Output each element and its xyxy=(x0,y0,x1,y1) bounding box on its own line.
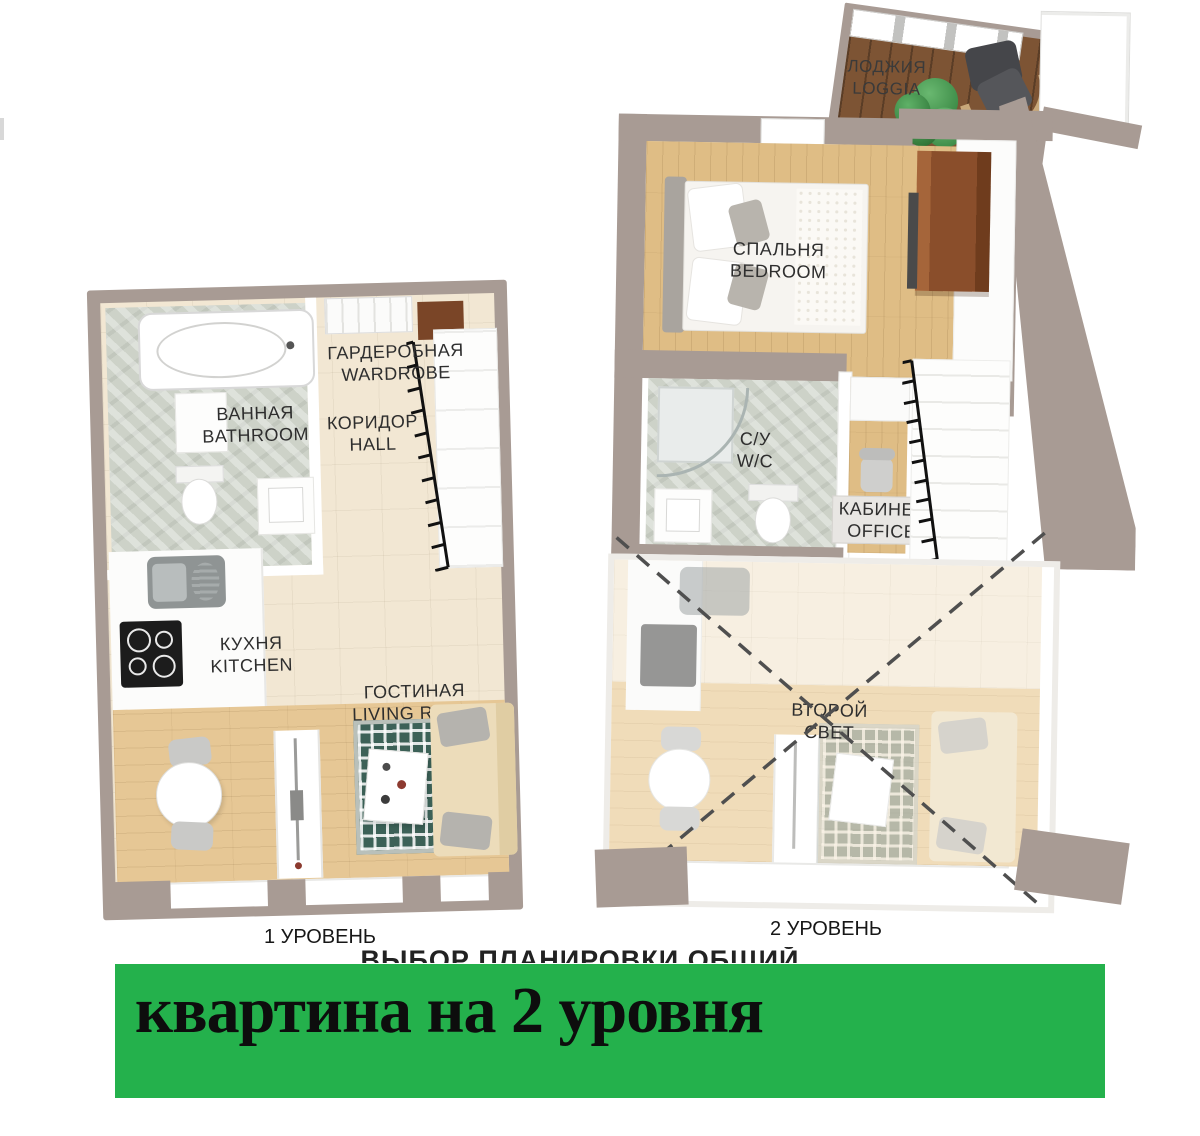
level1-plan: ВАННАЯ BATHROOM ГАРДЕРОБНАЯ WARDROBE КОР… xyxy=(87,280,523,921)
wardrobe-label: ГАРДЕРОБНАЯ WARDROBE xyxy=(295,338,496,387)
toilet xyxy=(173,465,225,526)
bathtub-drain xyxy=(286,341,294,349)
sofa xyxy=(430,703,518,857)
hall-label: КОРИДОР HALL xyxy=(272,409,473,458)
kitchen-sink xyxy=(147,555,226,609)
bathroom-sink xyxy=(257,477,315,535)
loggia-door xyxy=(760,118,824,145)
obscured-caption: ВЫБОР ПЛАНИРОВКИ ОБЩИЙ xyxy=(300,947,860,963)
kitchen-sink-drainboard xyxy=(191,562,220,601)
coffee-table xyxy=(363,748,428,824)
balcony-door xyxy=(273,730,323,879)
wall-stub xyxy=(110,881,171,917)
tv-panel xyxy=(907,193,919,289)
banner: квартина на 2 уровня xyxy=(115,964,1105,1098)
level2-caption: 2 УРОВЕНЬ xyxy=(726,918,926,941)
door-dot xyxy=(295,862,302,869)
bathtub xyxy=(137,309,315,392)
wall-stub xyxy=(488,872,519,907)
level1-caption: 1 УРОВЕНЬ xyxy=(220,926,420,949)
wall-stub xyxy=(402,876,441,907)
sofa-cushion xyxy=(436,706,491,748)
kitchen-sink-basin xyxy=(152,563,187,602)
door-handle xyxy=(290,790,304,820)
decor-dot xyxy=(382,763,391,772)
office-chair-seat xyxy=(860,458,893,493)
wc-label: С/У W/C xyxy=(655,426,856,473)
floor-plan-image: ВАННАЯ BATHROOM ГАРДЕРОБНАЯ WARDROBE КОР… xyxy=(0,0,1200,1136)
bathroom-sink-basin xyxy=(268,487,304,523)
dining-chair xyxy=(171,821,214,851)
bedroom-label: СПАЛЬНЯ BEDROOM xyxy=(678,237,879,284)
wall-stub xyxy=(595,846,689,907)
edge-artifact xyxy=(0,118,4,140)
loggia-label: ЛОДЖИЯ LOGGIA xyxy=(786,54,987,101)
banner-title: квартина на 2 уровня xyxy=(135,974,1085,1048)
wc-wall-top xyxy=(614,350,846,382)
level2-wall-left xyxy=(611,114,647,556)
bedroom-wardrobe xyxy=(915,151,991,292)
office-chair-back xyxy=(859,448,895,461)
level2-plan: ЛОДЖИЯ LOGGIA СПАЛЬНЯ BEDROOM xyxy=(597,0,1143,920)
office-chair xyxy=(854,448,899,499)
sofa-cushion xyxy=(439,811,493,850)
decor-dot-red xyxy=(397,780,407,790)
decor-dot xyxy=(381,795,391,805)
hall-closet xyxy=(324,296,413,334)
wc-label-en: W/C xyxy=(655,448,855,473)
wall-stub xyxy=(267,879,306,910)
kitchen-label: КУХНЯ KITCHEN xyxy=(151,630,352,679)
loggia-label-en: LOGGIA xyxy=(786,76,986,101)
toilet-bowl xyxy=(181,478,218,525)
bedroom-label-en: BEDROOM xyxy=(678,259,878,284)
bathtub-basin xyxy=(156,320,287,379)
